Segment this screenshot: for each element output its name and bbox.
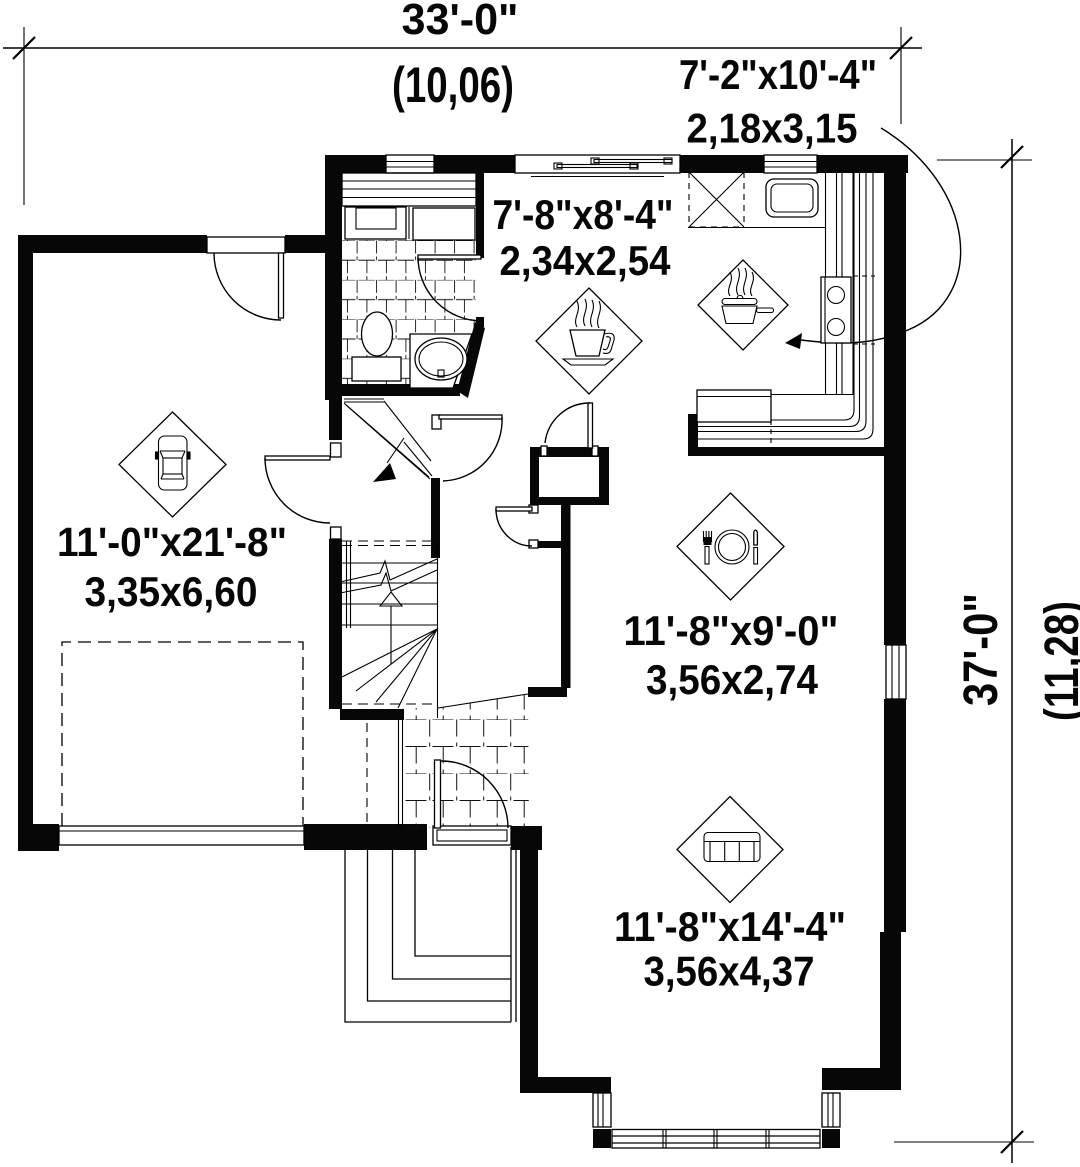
svg-text:37'-0": 37'-0" xyxy=(955,593,1008,706)
svg-text:33'-0": 33'-0" xyxy=(402,0,519,44)
svg-text:7'-8"x8'-4": 7'-8"x8'-4" xyxy=(493,191,674,238)
svg-text:3,35x6,60: 3,35x6,60 xyxy=(85,568,258,615)
svg-text:11'-8"x9'-0": 11'-8"x9'-0" xyxy=(624,607,839,654)
svg-text:3,56x4,37: 3,56x4,37 xyxy=(644,948,815,995)
svg-text:(11,28): (11,28) xyxy=(1036,601,1080,721)
svg-text:11'-8"x14'-4": 11'-8"x14'-4" xyxy=(614,903,846,950)
svg-text:7'-2"x10'-4": 7'-2"x10'-4" xyxy=(679,51,877,98)
svg-text:11'-0"x21'-8": 11'-0"x21'-8" xyxy=(57,519,287,565)
svg-text:(10,06): (10,06) xyxy=(392,57,514,113)
svg-text:3,56x2,74: 3,56x2,74 xyxy=(646,656,819,703)
svg-text:2,18x3,15: 2,18x3,15 xyxy=(687,105,858,152)
svg-text:2,34x2,54: 2,34x2,54 xyxy=(500,237,672,284)
